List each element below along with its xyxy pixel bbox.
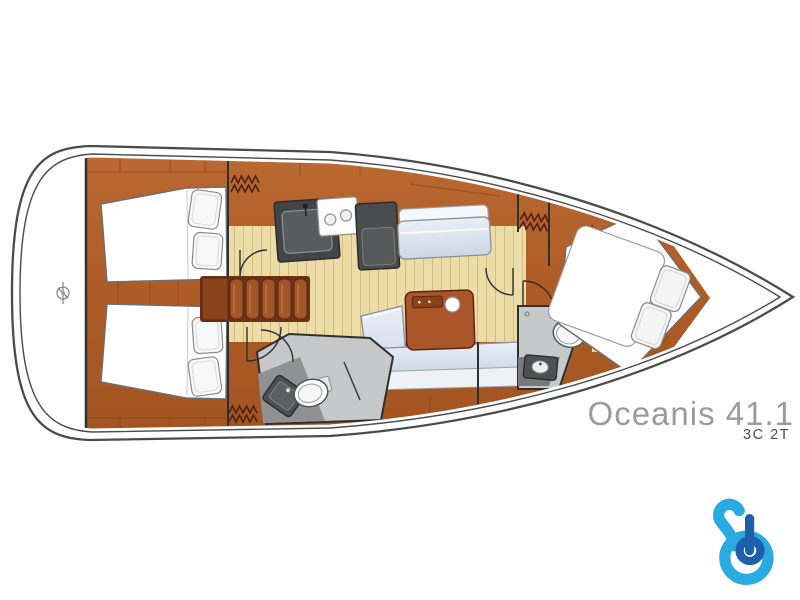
model-name: Oceanis 41.1 bbox=[588, 397, 794, 430]
saloon-settee-top bbox=[397, 205, 491, 260]
cup-holder-icon bbox=[445, 297, 461, 313]
pillow-icon bbox=[188, 356, 223, 397]
companionway-steps-icon bbox=[200, 276, 310, 322]
pillow-icon bbox=[192, 232, 223, 270]
washbasin-icon bbox=[523, 355, 558, 381]
fridge-icon bbox=[355, 202, 399, 270]
stove-burners-icon bbox=[317, 197, 359, 237]
pillow-icon bbox=[188, 189, 223, 230]
saloon-table-icon bbox=[405, 290, 475, 350]
layout-code: 3C 2T bbox=[743, 428, 790, 443]
boat-floorplan-image: Oceanis 41.1 3C 2T bbox=[0, 0, 800, 600]
floorplan-svg bbox=[0, 0, 800, 600]
boataround-b-logo-icon bbox=[701, 493, 787, 589]
